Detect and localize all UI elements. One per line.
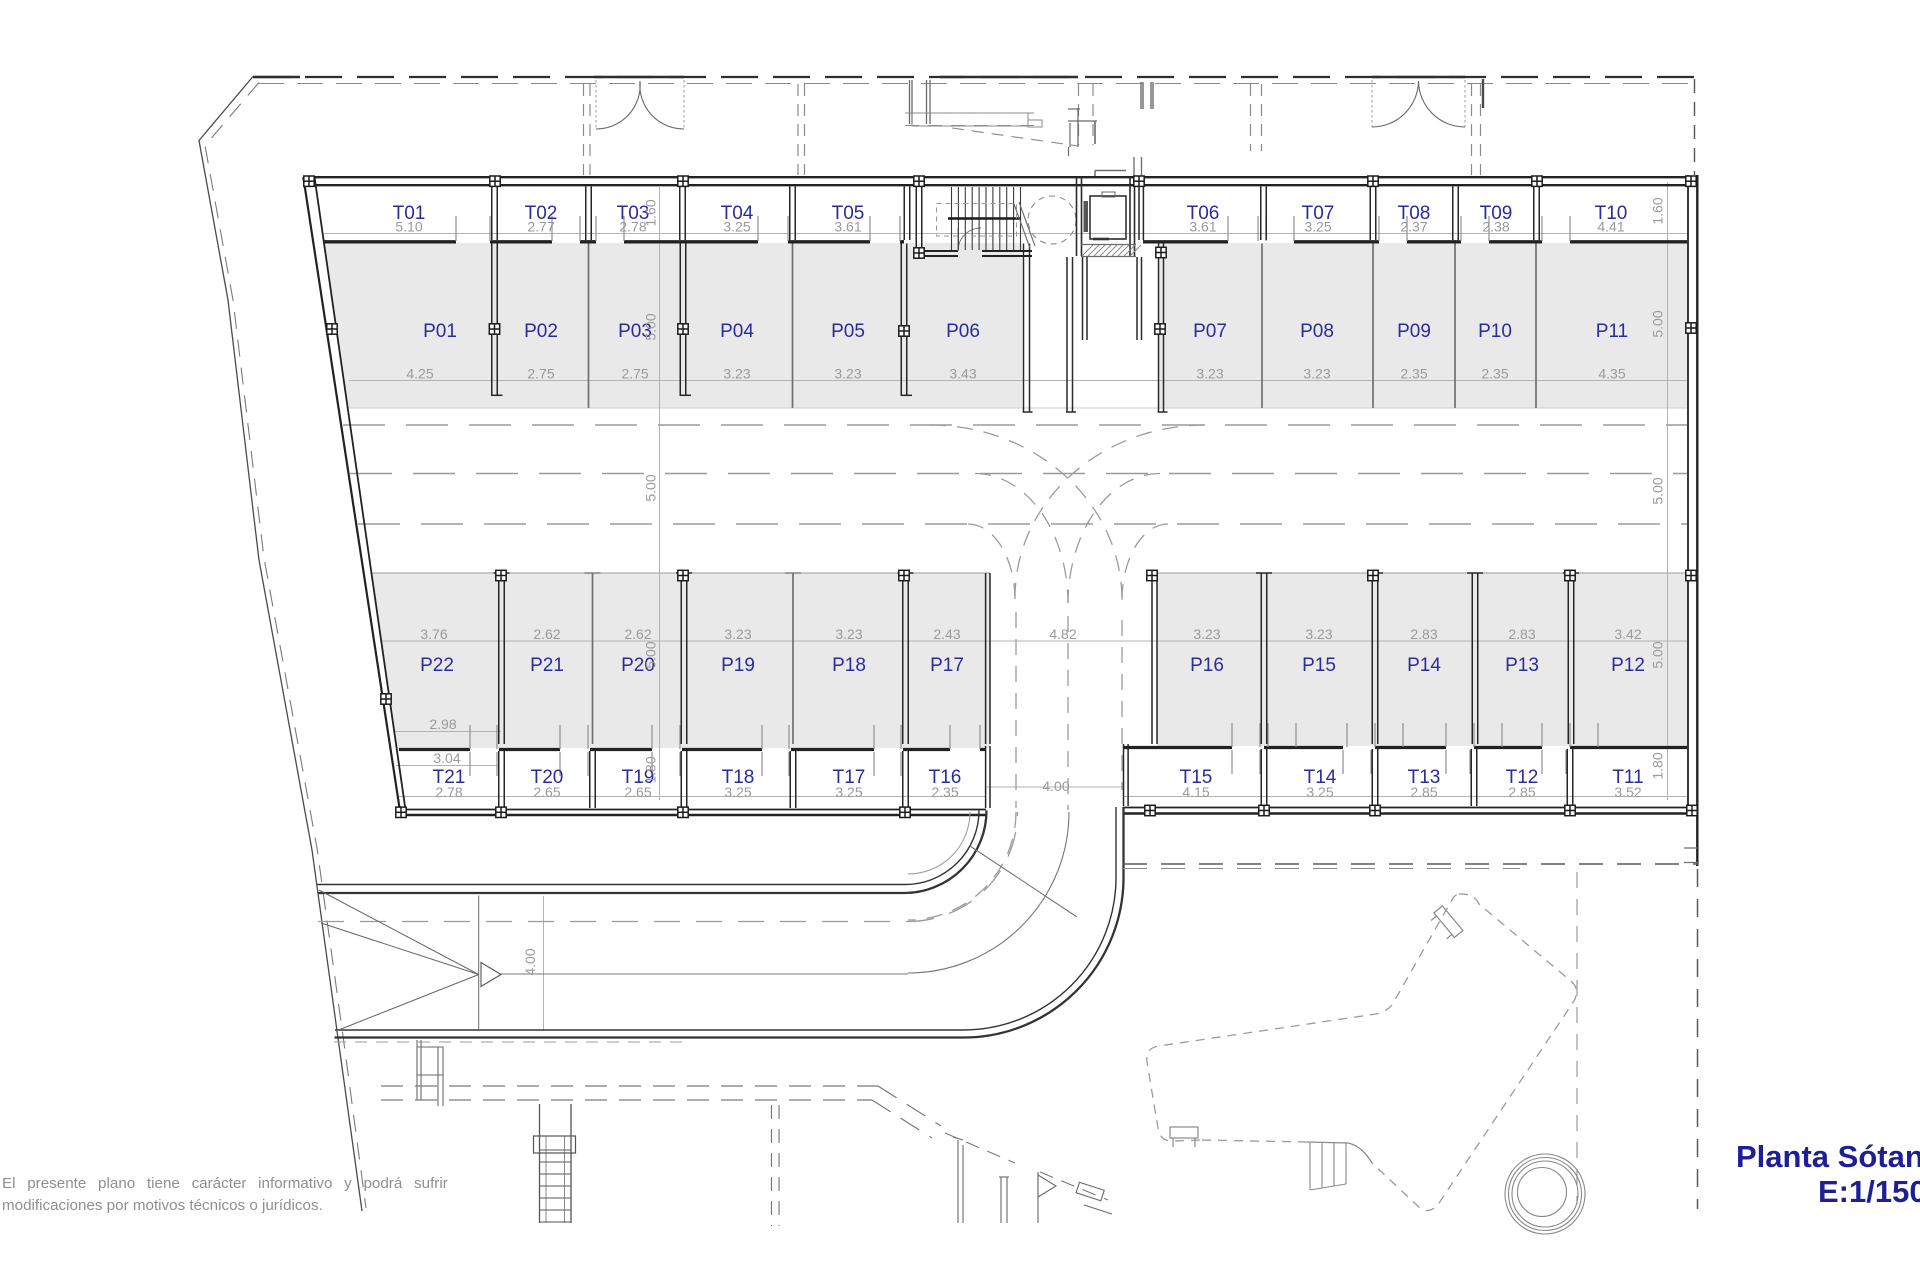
- svg-text:3.76: 3.76: [420, 626, 447, 642]
- svg-text:3.43: 3.43: [949, 366, 976, 382]
- svg-text:2.65: 2.65: [624, 784, 651, 800]
- svg-text:5.00: 5.00: [1650, 641, 1666, 668]
- svg-text:P04: P04: [720, 321, 754, 342]
- svg-text:2.75: 2.75: [621, 366, 648, 382]
- svg-text:3.23: 3.23: [724, 626, 751, 642]
- svg-text:P06: P06: [946, 321, 980, 342]
- svg-text:P08: P08: [1300, 321, 1334, 342]
- svg-text:5.00: 5.00: [1650, 477, 1666, 504]
- svg-text:4.35: 4.35: [1598, 366, 1625, 382]
- svg-text:3.61: 3.61: [1189, 219, 1216, 235]
- svg-text:3.42: 3.42: [1614, 626, 1641, 642]
- svg-text:2.38: 2.38: [1482, 219, 1509, 235]
- svg-text:P01: P01: [423, 321, 457, 342]
- svg-text:3.61: 3.61: [834, 219, 861, 235]
- svg-text:5.10: 5.10: [395, 219, 422, 235]
- svg-text:4.25: 4.25: [406, 366, 433, 382]
- svg-text:4.15: 4.15: [1182, 784, 1209, 800]
- svg-text:2.75: 2.75: [527, 366, 554, 382]
- svg-text:4.00: 4.00: [1042, 778, 1069, 794]
- svg-text:El presente plano tiene caráct: El presente plano tiene carácter informa…: [2, 1175, 448, 1192]
- svg-text:E:1/150: E:1/150: [1818, 1174, 1920, 1209]
- svg-text:1.60: 1.60: [643, 199, 659, 226]
- svg-text:3.23: 3.23: [1305, 626, 1332, 642]
- svg-text:2.35: 2.35: [931, 784, 958, 800]
- svg-text:3.23: 3.23: [1193, 626, 1220, 642]
- svg-text:5.00: 5.00: [643, 313, 659, 340]
- svg-text:3.04: 3.04: [433, 750, 460, 766]
- svg-text:1.80: 1.80: [643, 756, 659, 783]
- svg-text:2.35: 2.35: [1481, 366, 1508, 382]
- svg-text:P22: P22: [420, 655, 454, 676]
- svg-text:P07: P07: [1193, 321, 1227, 342]
- svg-text:P21: P21: [530, 655, 564, 676]
- svg-text:P02: P02: [524, 321, 558, 342]
- svg-text:P15: P15: [1302, 655, 1336, 676]
- svg-text:3.25: 3.25: [723, 219, 750, 235]
- svg-text:2.65: 2.65: [533, 784, 560, 800]
- svg-text:2.85: 2.85: [1410, 784, 1437, 800]
- svg-text:P14: P14: [1407, 655, 1441, 676]
- svg-text:P19: P19: [721, 655, 755, 676]
- svg-text:2.62: 2.62: [533, 626, 560, 642]
- svg-text:P09: P09: [1397, 321, 1431, 342]
- svg-text:2.35: 2.35: [1400, 366, 1427, 382]
- svg-text:2.62: 2.62: [624, 626, 651, 642]
- svg-text:4.82: 4.82: [1049, 626, 1076, 642]
- svg-text:P05: P05: [831, 321, 865, 342]
- svg-text:1.60: 1.60: [1650, 197, 1666, 224]
- svg-text:5.00: 5.00: [1650, 310, 1666, 337]
- svg-text:2.43: 2.43: [933, 626, 960, 642]
- svg-text:1.80: 1.80: [1650, 752, 1666, 779]
- svg-text:2.78: 2.78: [435, 784, 462, 800]
- svg-text:3.23: 3.23: [1303, 366, 1330, 382]
- svg-text:2.85: 2.85: [1508, 784, 1535, 800]
- svg-text:4.00: 4.00: [522, 948, 538, 975]
- svg-text:3.25: 3.25: [724, 784, 751, 800]
- svg-text:5.00: 5.00: [643, 474, 659, 501]
- svg-text:2.98: 2.98: [429, 716, 456, 732]
- svg-text:Planta Sótano: Planta Sótano: [1736, 1139, 1920, 1174]
- svg-text:P11: P11: [1596, 321, 1628, 342]
- svg-text:2.77: 2.77: [527, 219, 554, 235]
- svg-text:P17: P17: [930, 655, 964, 676]
- svg-text:P13: P13: [1505, 655, 1539, 676]
- svg-text:3.25: 3.25: [1306, 784, 1333, 800]
- svg-text:3.23: 3.23: [834, 366, 861, 382]
- svg-text:2.83: 2.83: [1410, 626, 1437, 642]
- svg-text:3.23: 3.23: [835, 626, 862, 642]
- svg-text:5.00: 5.00: [643, 641, 659, 668]
- svg-text:3.25: 3.25: [1304, 219, 1331, 235]
- svg-text:P16: P16: [1190, 655, 1224, 676]
- svg-text:3.23: 3.23: [723, 366, 750, 382]
- svg-text:3.52: 3.52: [1614, 784, 1641, 800]
- svg-text:P10: P10: [1478, 321, 1512, 342]
- svg-text:4.41: 4.41: [1597, 219, 1624, 235]
- svg-text:3.23: 3.23: [1196, 366, 1223, 382]
- svg-text:3.25: 3.25: [835, 784, 862, 800]
- svg-text:P18: P18: [832, 655, 866, 676]
- svg-text:P12: P12: [1611, 655, 1645, 676]
- svg-text:2.37: 2.37: [1400, 219, 1427, 235]
- svg-text:modificaciones por motivos téc: modificaciones por motivos técnicos o ju…: [2, 1197, 323, 1214]
- svg-text:2.83: 2.83: [1508, 626, 1535, 642]
